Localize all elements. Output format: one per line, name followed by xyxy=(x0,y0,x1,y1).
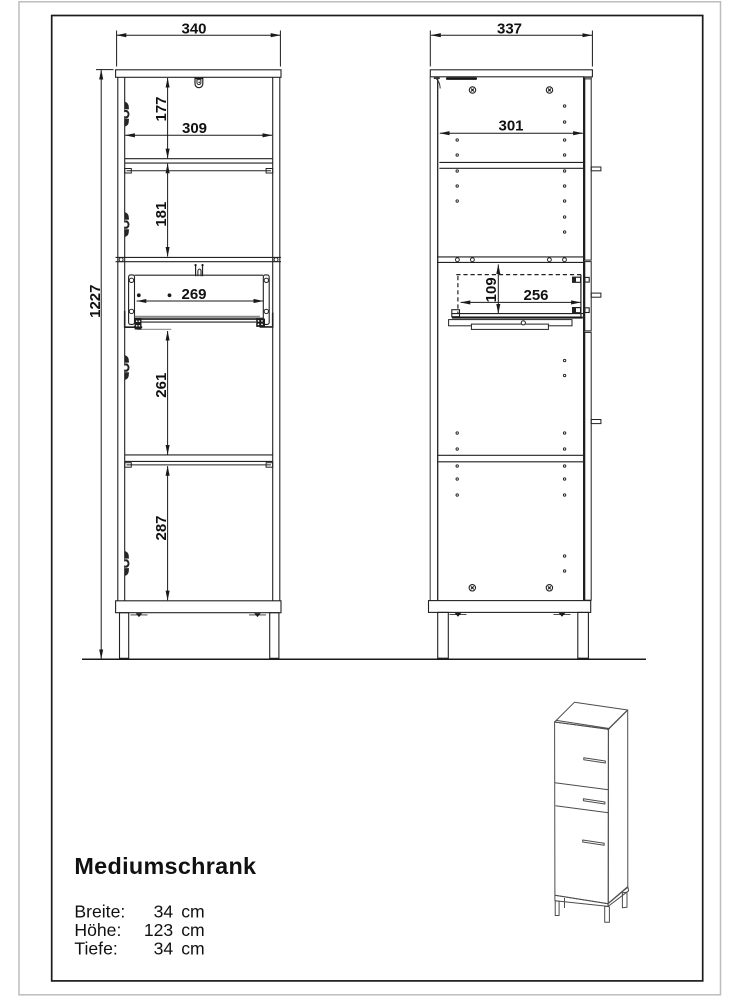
svg-text:123: 123 xyxy=(144,920,174,940)
svg-text:34: 34 xyxy=(154,902,174,922)
svg-text:261: 261 xyxy=(153,373,170,398)
svg-text:340: 340 xyxy=(181,20,206,37)
svg-text:337: 337 xyxy=(497,20,522,37)
svg-text:Tiefe:: Tiefe: xyxy=(74,938,117,958)
svg-text:287: 287 xyxy=(153,515,170,540)
svg-text:cm: cm xyxy=(181,920,204,940)
svg-text:181: 181 xyxy=(153,202,170,227)
svg-text:109: 109 xyxy=(483,277,500,302)
svg-text:cm: cm xyxy=(181,938,204,958)
svg-text:Mediumschrank: Mediumschrank xyxy=(74,853,257,879)
svg-text:1227: 1227 xyxy=(87,285,104,318)
svg-text:cm: cm xyxy=(181,902,204,922)
svg-text:177: 177 xyxy=(153,96,170,121)
svg-text:301: 301 xyxy=(498,117,523,134)
svg-text:34: 34 xyxy=(154,938,174,958)
svg-text:Breite:: Breite: xyxy=(74,902,125,922)
svg-text:256: 256 xyxy=(523,287,548,304)
svg-text:269: 269 xyxy=(181,286,206,303)
svg-text:Höhe:: Höhe: xyxy=(74,920,121,940)
svg-text:309: 309 xyxy=(182,120,207,137)
